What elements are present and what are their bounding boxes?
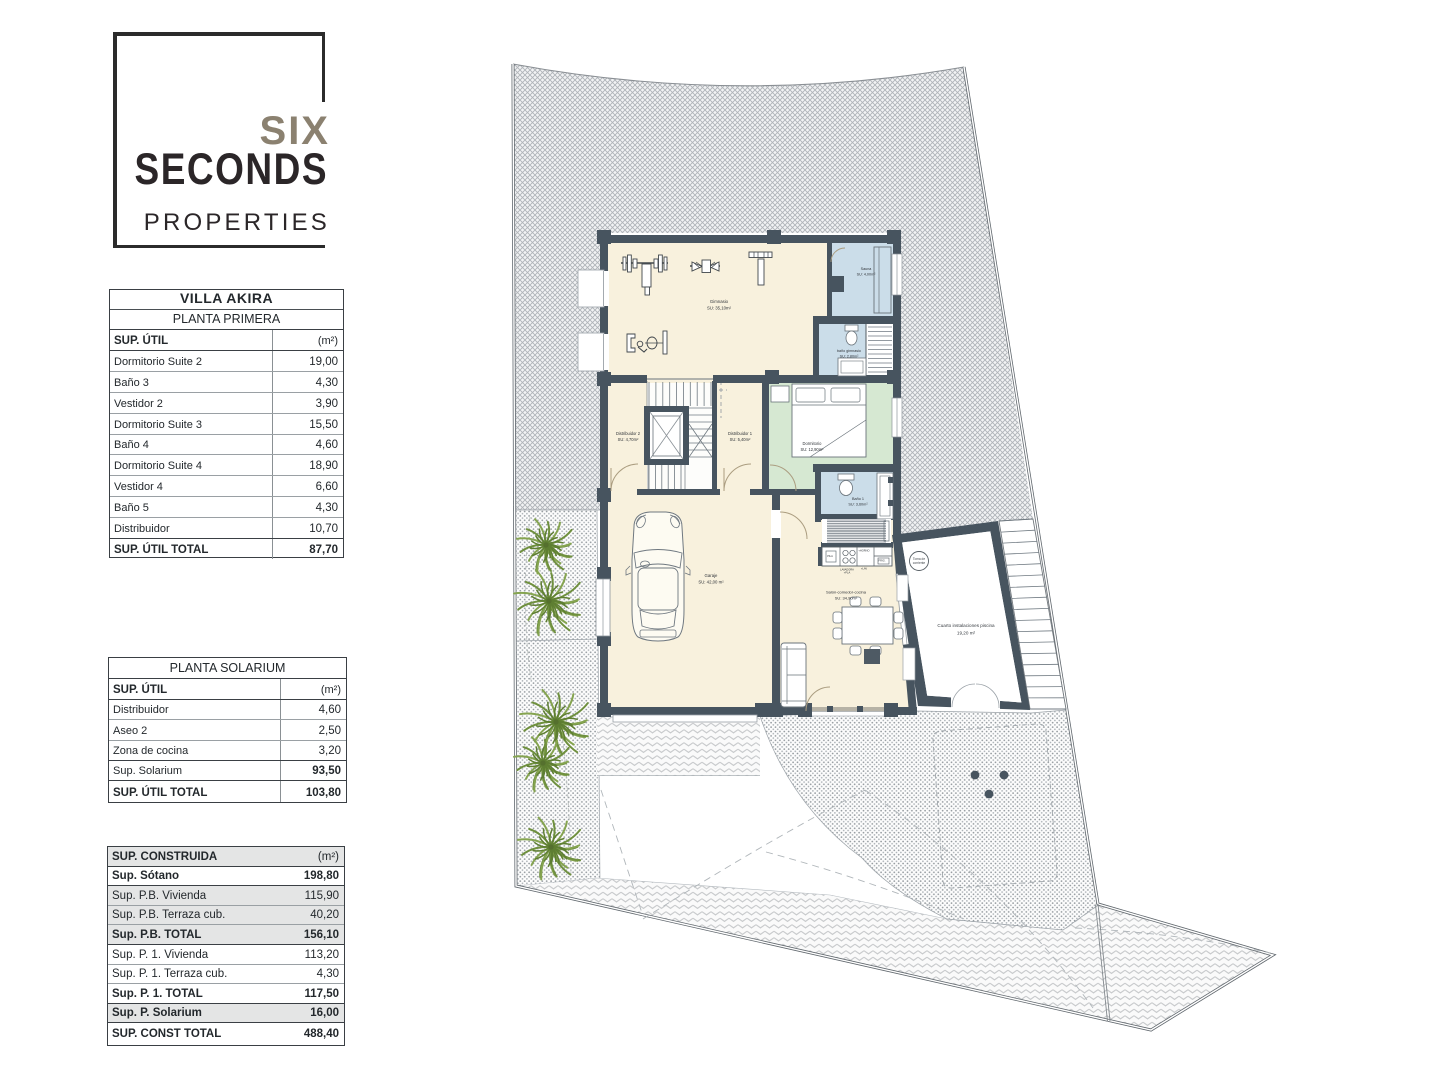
svg-text:Sauna: Sauna — [861, 267, 873, 271]
svg-text:Distribuidor 2: Distribuidor 2 — [616, 431, 641, 436]
svg-text:SU: 3,60m²: SU: 3,60m² — [848, 503, 868, 507]
svg-text:SU: 34,90m²: SU: 34,90m² — [835, 596, 858, 601]
svg-text:SU: 4,70m²: SU: 4,70m² — [618, 437, 639, 442]
svg-text:+LAV: +LAV — [861, 567, 867, 571]
svg-text:Gimnasio: Gimnasio — [710, 299, 729, 304]
svg-text:Salón-comedor-cocina: Salón-comedor-cocina — [826, 590, 867, 595]
svg-text:+HORNO: +HORNO — [858, 549, 869, 553]
svg-text:Garaje: Garaje — [705, 573, 719, 578]
svg-text:PILA: PILA — [827, 554, 833, 558]
svg-text:Cuarto instalaciones piscina: Cuarto instalaciones piscina — [937, 623, 995, 628]
svg-text:SU: 12,90m²: SU: 12,90m² — [801, 447, 825, 452]
svg-text:SU: 4,00m²: SU: 4,00m² — [857, 273, 876, 277]
svg-text:Dormitorio: Dormitorio — [803, 441, 823, 446]
svg-text:FRIG.: FRIG. — [879, 559, 886, 563]
svg-text:baño gimnasio: baño gimnasio — [837, 349, 861, 353]
svg-text:19,20 m²: 19,20 m² — [957, 631, 976, 636]
svg-text:Distribuidor 1: Distribuidor 1 — [728, 431, 753, 436]
svg-text:Baño 1: Baño 1 — [852, 497, 864, 501]
svg-text:SU: 2,80m²: SU: 2,80m² — [840, 355, 859, 359]
svg-text:SU: 35,10m²: SU: 35,10m² — [707, 306, 732, 311]
svg-text:corriente: corriente — [913, 561, 926, 565]
svg-text:SU: 42,00 m²: SU: 42,00 m² — [698, 580, 724, 585]
svg-text:SU: 5,40m²: SU: 5,40m² — [730, 437, 751, 442]
svg-text:+PLA: +PLA — [844, 571, 851, 575]
